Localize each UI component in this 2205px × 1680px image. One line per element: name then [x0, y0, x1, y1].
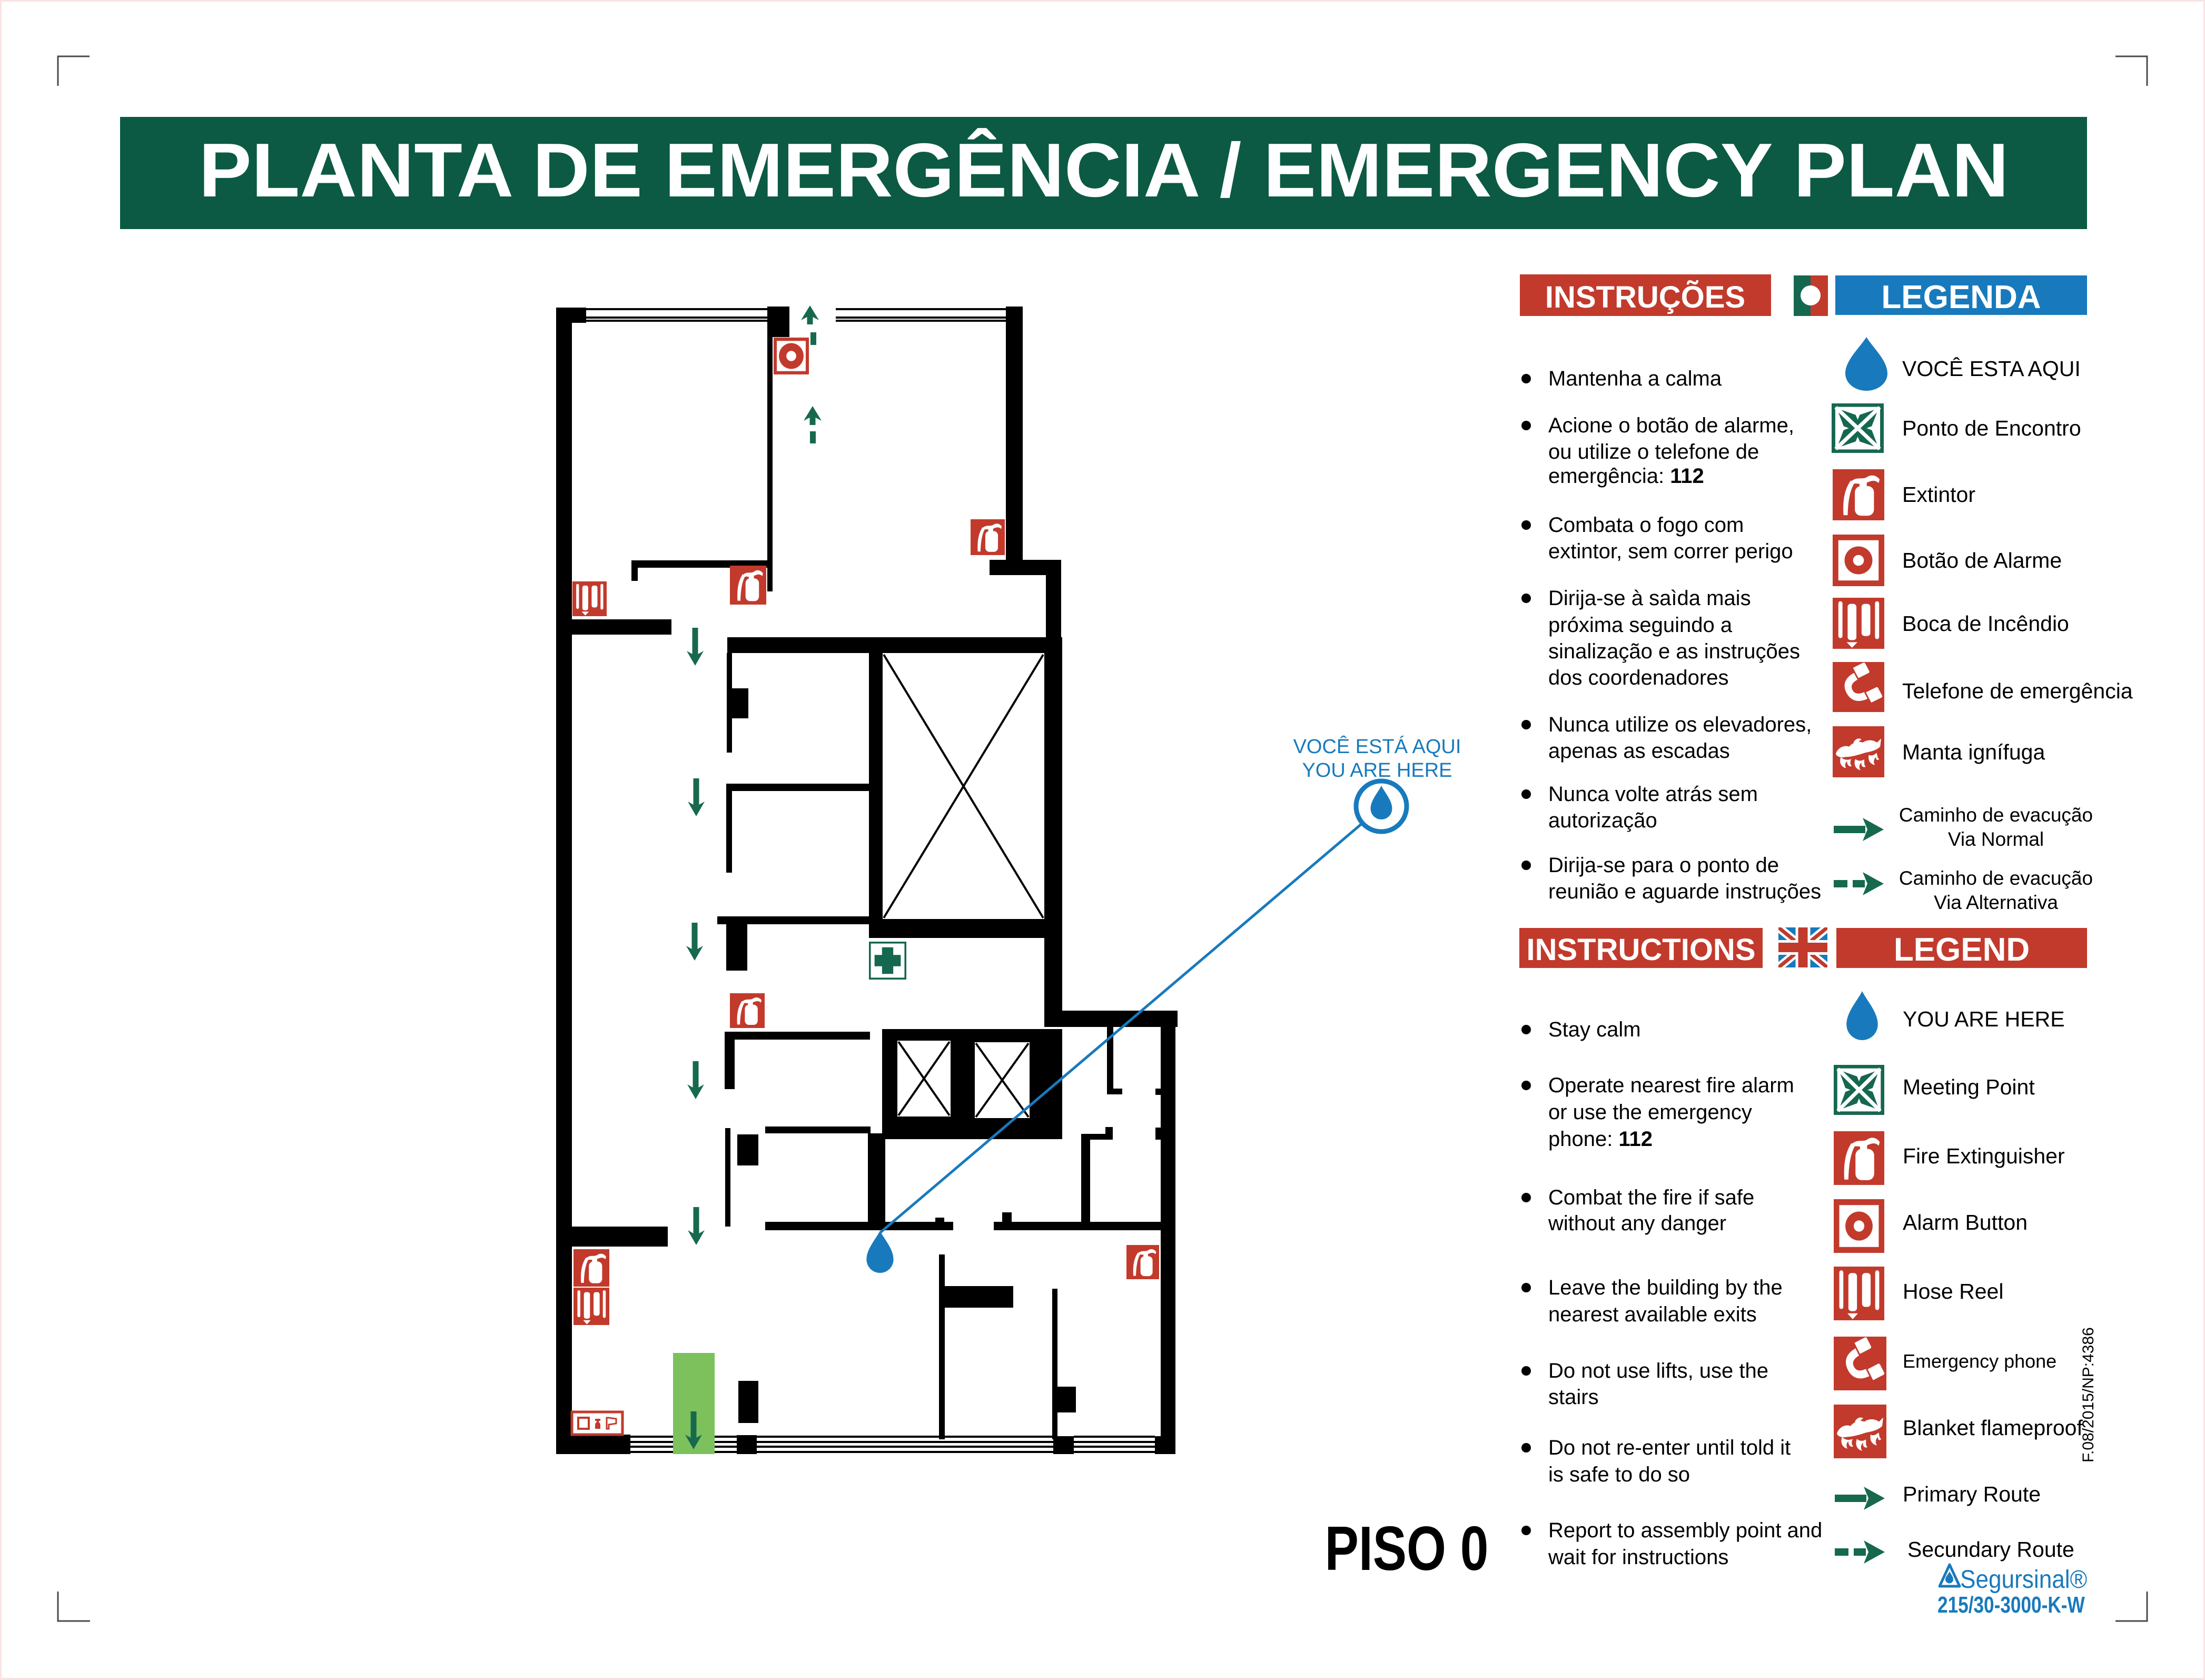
svg-text:INSTRUCTIONS: INSTRUCTIONS: [1527, 933, 1756, 967]
svg-text:nearest available exits: nearest available exits: [1548, 1303, 1757, 1326]
svg-text:Nunca utilize os elevadores,: Nunca utilize os elevadores,: [1548, 713, 1812, 736]
svg-text:Caminho de evacução: Caminho de evacução: [1899, 867, 2093, 889]
svg-text:Emergency phone: Emergency phone: [1903, 1350, 2056, 1372]
svg-text:Botão de Alarme: Botão de Alarme: [1902, 548, 2062, 572]
svg-text:Blanket flameproof: Blanket flameproof: [1903, 1416, 2083, 1440]
svg-text:without any danger: without any danger: [1548, 1212, 1726, 1235]
svg-text:extintor, sem correr perigo: extintor, sem correr perigo: [1548, 540, 1793, 563]
svg-text:Operate nearest fire alarm: Operate nearest fire alarm: [1548, 1074, 1794, 1097]
svg-text:Leave the building by the: Leave the building by the: [1548, 1276, 1783, 1299]
svg-text:F.08/2015/NP:4386: F.08/2015/NP:4386: [2080, 1327, 2097, 1462]
svg-text:emergência: 112: emergência: 112: [1548, 465, 1704, 488]
svg-text:PISO 0: PISO 0: [1325, 1513, 1489, 1583]
svg-text:LEGENDA: LEGENDA: [1881, 279, 2041, 315]
svg-text:Meeting Point: Meeting Point: [1903, 1075, 2035, 1099]
svg-text:Ponto de Encontro: Ponto de Encontro: [1902, 416, 2081, 440]
svg-text:Report to assembly point and: Report to assembly point and: [1548, 1519, 1822, 1542]
svg-text:LEGEND: LEGEND: [1894, 932, 2030, 968]
svg-text:is safe to do so: is safe to do so: [1548, 1463, 1690, 1486]
svg-text:Primary Route: Primary Route: [1903, 1482, 2041, 1506]
svg-text:Caminho de evacução: Caminho de evacução: [1899, 804, 2093, 826]
svg-text:Via Alternativa: Via Alternativa: [1934, 892, 2058, 913]
svg-text:Fire Extinguisher: Fire Extinguisher: [1903, 1144, 2065, 1168]
svg-text:stairs: stairs: [1548, 1386, 1599, 1409]
svg-text:Acione o botão de alarme,: Acione o botão de alarme,: [1548, 414, 1794, 437]
svg-text:Segursinal®: Segursinal®: [1960, 1565, 2087, 1593]
svg-text:VOCÊ ESTA AQUI: VOCÊ ESTA AQUI: [1902, 357, 2081, 381]
svg-text:Nunca volte atrás sem: Nunca volte atrás sem: [1548, 783, 1758, 806]
svg-text:dos coordenadores: dos coordenadores: [1548, 666, 1728, 689]
svg-text:autorização: autorização: [1548, 809, 1657, 832]
svg-text:215/30-3000-K-W: 215/30-3000-K-W: [1937, 1592, 2085, 1618]
svg-text:YOU ARE HERE: YOU ARE HERE: [1302, 759, 1452, 782]
svg-text:Dirija-se à saìda mais: Dirija-se à saìda mais: [1548, 587, 1751, 610]
svg-text:Via Normal: Via Normal: [1948, 828, 2044, 850]
svg-text:INSTRUÇÕES: INSTRUÇÕES: [1545, 280, 1745, 314]
svg-text:Hose Reel: Hose Reel: [1903, 1279, 2003, 1303]
svg-text:VOCÊ ESTÁ AQUI: VOCÊ ESTÁ AQUI: [1293, 735, 1461, 758]
svg-text:Combat the fire if safe: Combat the fire if safe: [1548, 1186, 1754, 1209]
svg-text:reunião e aguarde instruções: reunião e aguarde instruções: [1548, 880, 1821, 903]
svg-text:Telefone de emergência: Telefone de emergência: [1902, 679, 2133, 703]
svg-text:Combata o fogo com: Combata o fogo com: [1548, 513, 1744, 537]
svg-text:Alarm Button: Alarm Button: [1903, 1210, 2028, 1234]
svg-text:Stay calm: Stay calm: [1548, 1018, 1641, 1041]
svg-text:Secundary Route: Secundary Route: [1907, 1537, 2074, 1562]
svg-text:Do not use lifts, use the: Do not use lifts, use the: [1548, 1359, 1768, 1382]
svg-text:PLANTA DE EMERGÊNCIA / EMERGEN: PLANTA DE EMERGÊNCIA / EMERGENCY PLAN: [199, 127, 2009, 213]
svg-text:wait for instructions: wait for instructions: [1548, 1546, 1728, 1569]
svg-text:Do not re-enter until told it: Do not re-enter until told it: [1548, 1436, 1791, 1459]
svg-text:Boca de Incêndio: Boca de Incêndio: [1902, 611, 2069, 636]
svg-text:próxima seguindo a: próxima seguindo a: [1548, 614, 1733, 637]
svg-text:ou utilize o telefone de: ou utilize o telefone de: [1548, 440, 1759, 463]
svg-text:apenas as escadas: apenas as escadas: [1548, 739, 1730, 763]
svg-text:or use the emergency: or use the emergency: [1548, 1101, 1752, 1124]
svg-text:phone: 112: phone: 112: [1548, 1128, 1653, 1151]
svg-text:Extintor: Extintor: [1902, 482, 1975, 507]
svg-text:Mantenha a calma: Mantenha a calma: [1548, 367, 1722, 390]
svg-text:Manta ignífuga: Manta ignífuga: [1902, 740, 2045, 764]
svg-text:Dirija-se para o ponto de: Dirija-se para o ponto de: [1548, 854, 1779, 877]
svg-text:sinalização e as instruções: sinalização e as instruções: [1548, 640, 1800, 663]
svg-text:YOU ARE HERE: YOU ARE HERE: [1903, 1007, 2065, 1031]
